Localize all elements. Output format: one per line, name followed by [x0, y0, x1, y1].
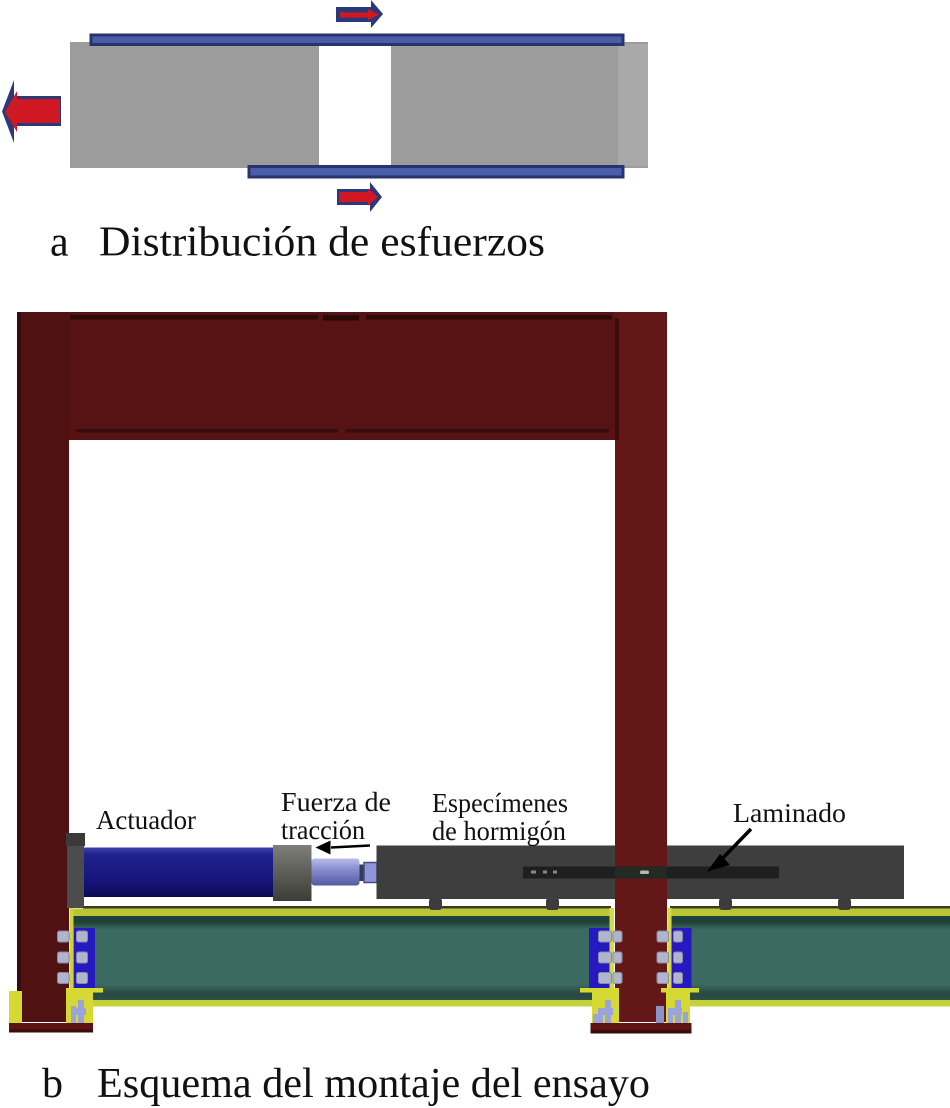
- svg-text:Actuador: Actuador: [96, 805, 196, 835]
- svg-text:Esquema del montaje del ensayo: Esquema del montaje del ensayo: [97, 1061, 650, 1107]
- svg-text:a: a: [50, 220, 69, 266]
- svg-text:Laminado: Laminado: [733, 798, 846, 828]
- svg-text:Distribución de esfuerzos: Distribución de esfuerzos: [99, 220, 545, 266]
- svg-text:Especímenes: Especímenes: [432, 788, 568, 818]
- svg-text:b: b: [42, 1061, 63, 1107]
- svg-text:Fuerza de: Fuerza de: [281, 787, 391, 817]
- svg-text:tracción: tracción: [281, 815, 365, 845]
- svg-text:de hormigón: de hormigón: [432, 816, 566, 846]
